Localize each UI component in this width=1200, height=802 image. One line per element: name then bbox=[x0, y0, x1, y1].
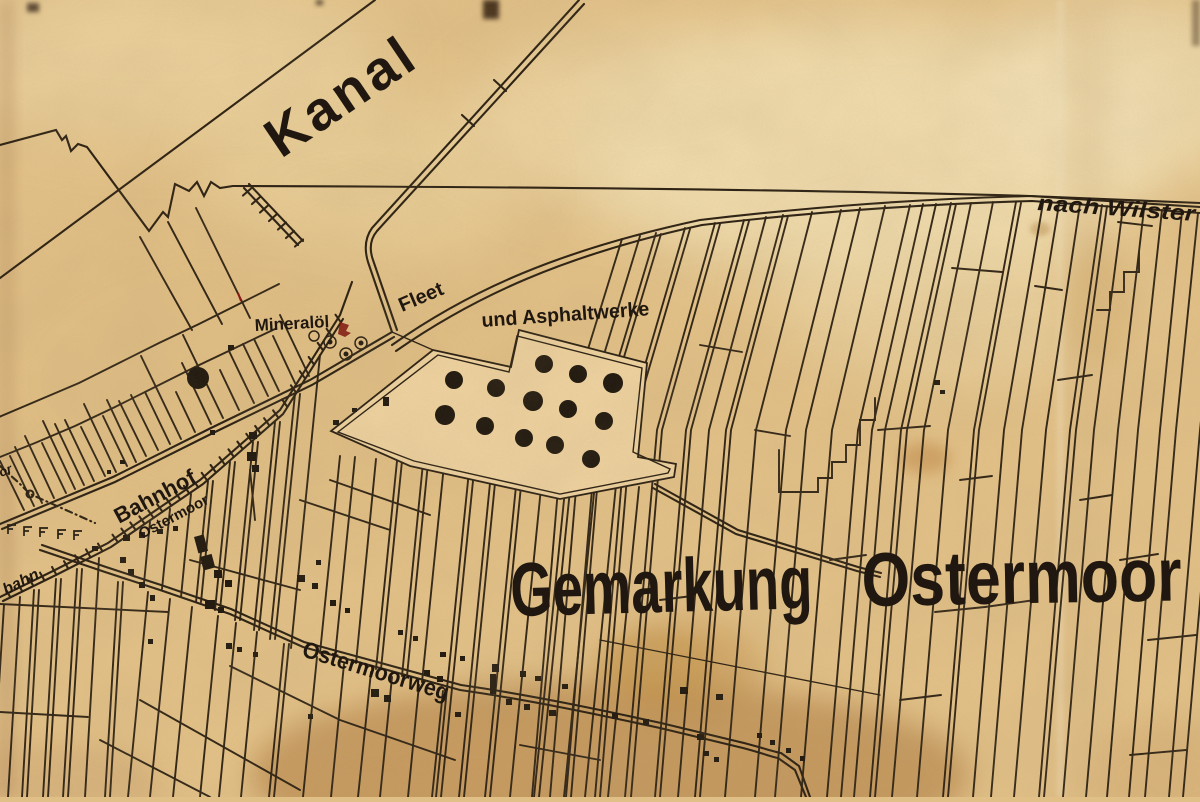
svg-text:Gemarkung: Gemarkung bbox=[509, 540, 813, 633]
svg-text:Mineralöl: Mineralöl bbox=[254, 312, 330, 335]
svg-text:Ostermoor: Ostermoor bbox=[861, 532, 1182, 623]
